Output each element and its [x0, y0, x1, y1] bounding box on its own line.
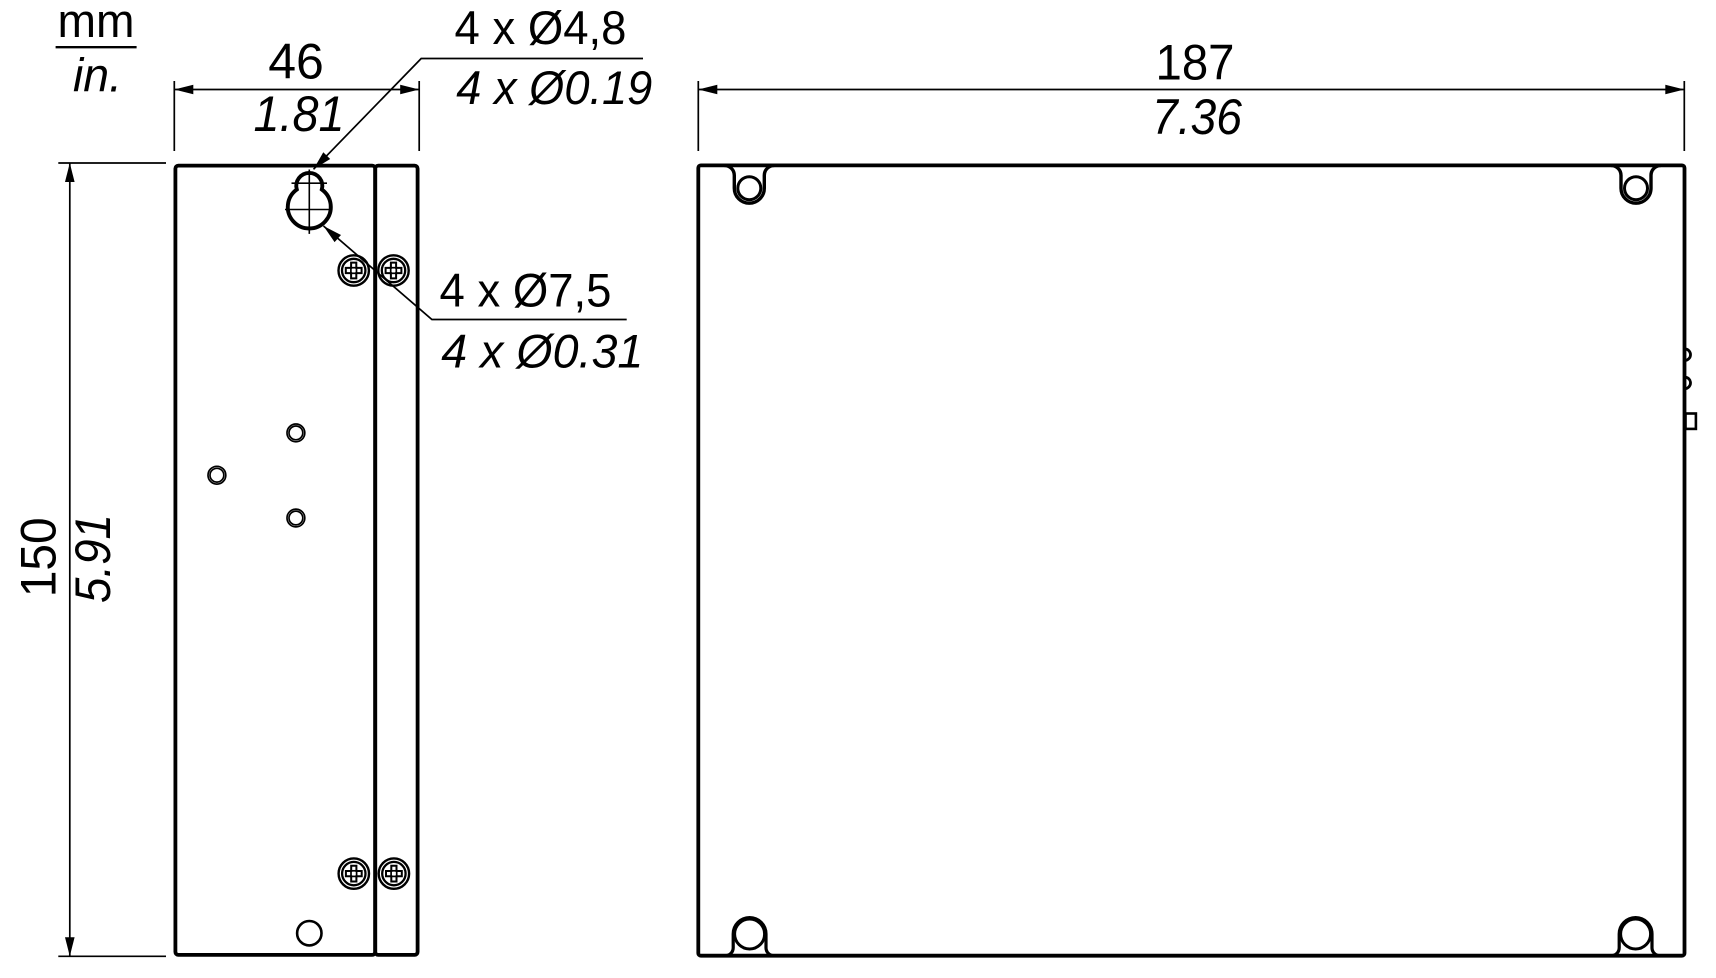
svg-text:1.81: 1.81: [254, 86, 345, 142]
svg-text:5.91: 5.91: [65, 514, 121, 603]
svg-text:4 x Ø0.19: 4 x Ø0.19: [456, 61, 652, 114]
svg-text:150: 150: [10, 517, 66, 597]
svg-text:46: 46: [268, 34, 324, 90]
svg-text:4 x Ø4,8: 4 x Ø4,8: [455, 1, 627, 54]
svg-text:4 x Ø7,5: 4 x Ø7,5: [440, 264, 612, 317]
svg-text:4 x Ø0.31: 4 x Ø0.31: [441, 325, 643, 378]
svg-text:7.36: 7.36: [1152, 89, 1242, 145]
svg-text:in.: in.: [73, 50, 122, 103]
svg-text:mm: mm: [58, 0, 135, 48]
svg-text:187: 187: [1156, 35, 1235, 91]
